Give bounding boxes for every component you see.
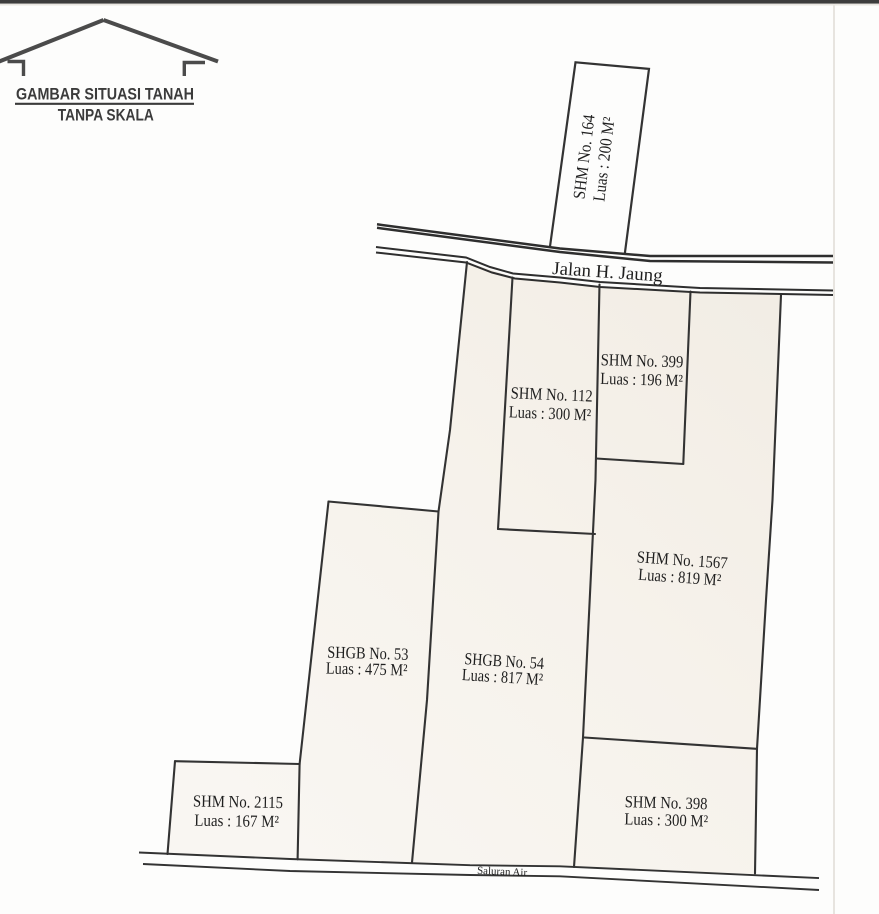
svg-text:Luas : 167 M²: Luas : 167 M² bbox=[194, 811, 279, 831]
svg-text:GAMBAR SITUASI TANAH: GAMBAR SITUASI TANAH bbox=[16, 86, 194, 104]
svg-text:Luas : 300 M²: Luas : 300 M² bbox=[508, 402, 591, 424]
svg-text:Luas : 475 M²: Luas : 475 M² bbox=[326, 659, 408, 680]
svg-text:SHM No. 399: SHM No. 399 bbox=[601, 350, 684, 371]
svg-text:Saluran Air: Saluran Air bbox=[477, 865, 528, 879]
svg-text:Jalan H. Jaung: Jalan H. Jaung bbox=[552, 259, 664, 286]
svg-text:Luas : 196 M²: Luas : 196 M² bbox=[600, 369, 683, 390]
svg-text:TANPA SKALA: TANPA SKALA bbox=[58, 106, 154, 124]
svg-text:SHM No. 2115: SHM No. 2115 bbox=[193, 792, 283, 813]
svg-text:Luas : 300 M²: Luas : 300 M² bbox=[624, 809, 708, 830]
